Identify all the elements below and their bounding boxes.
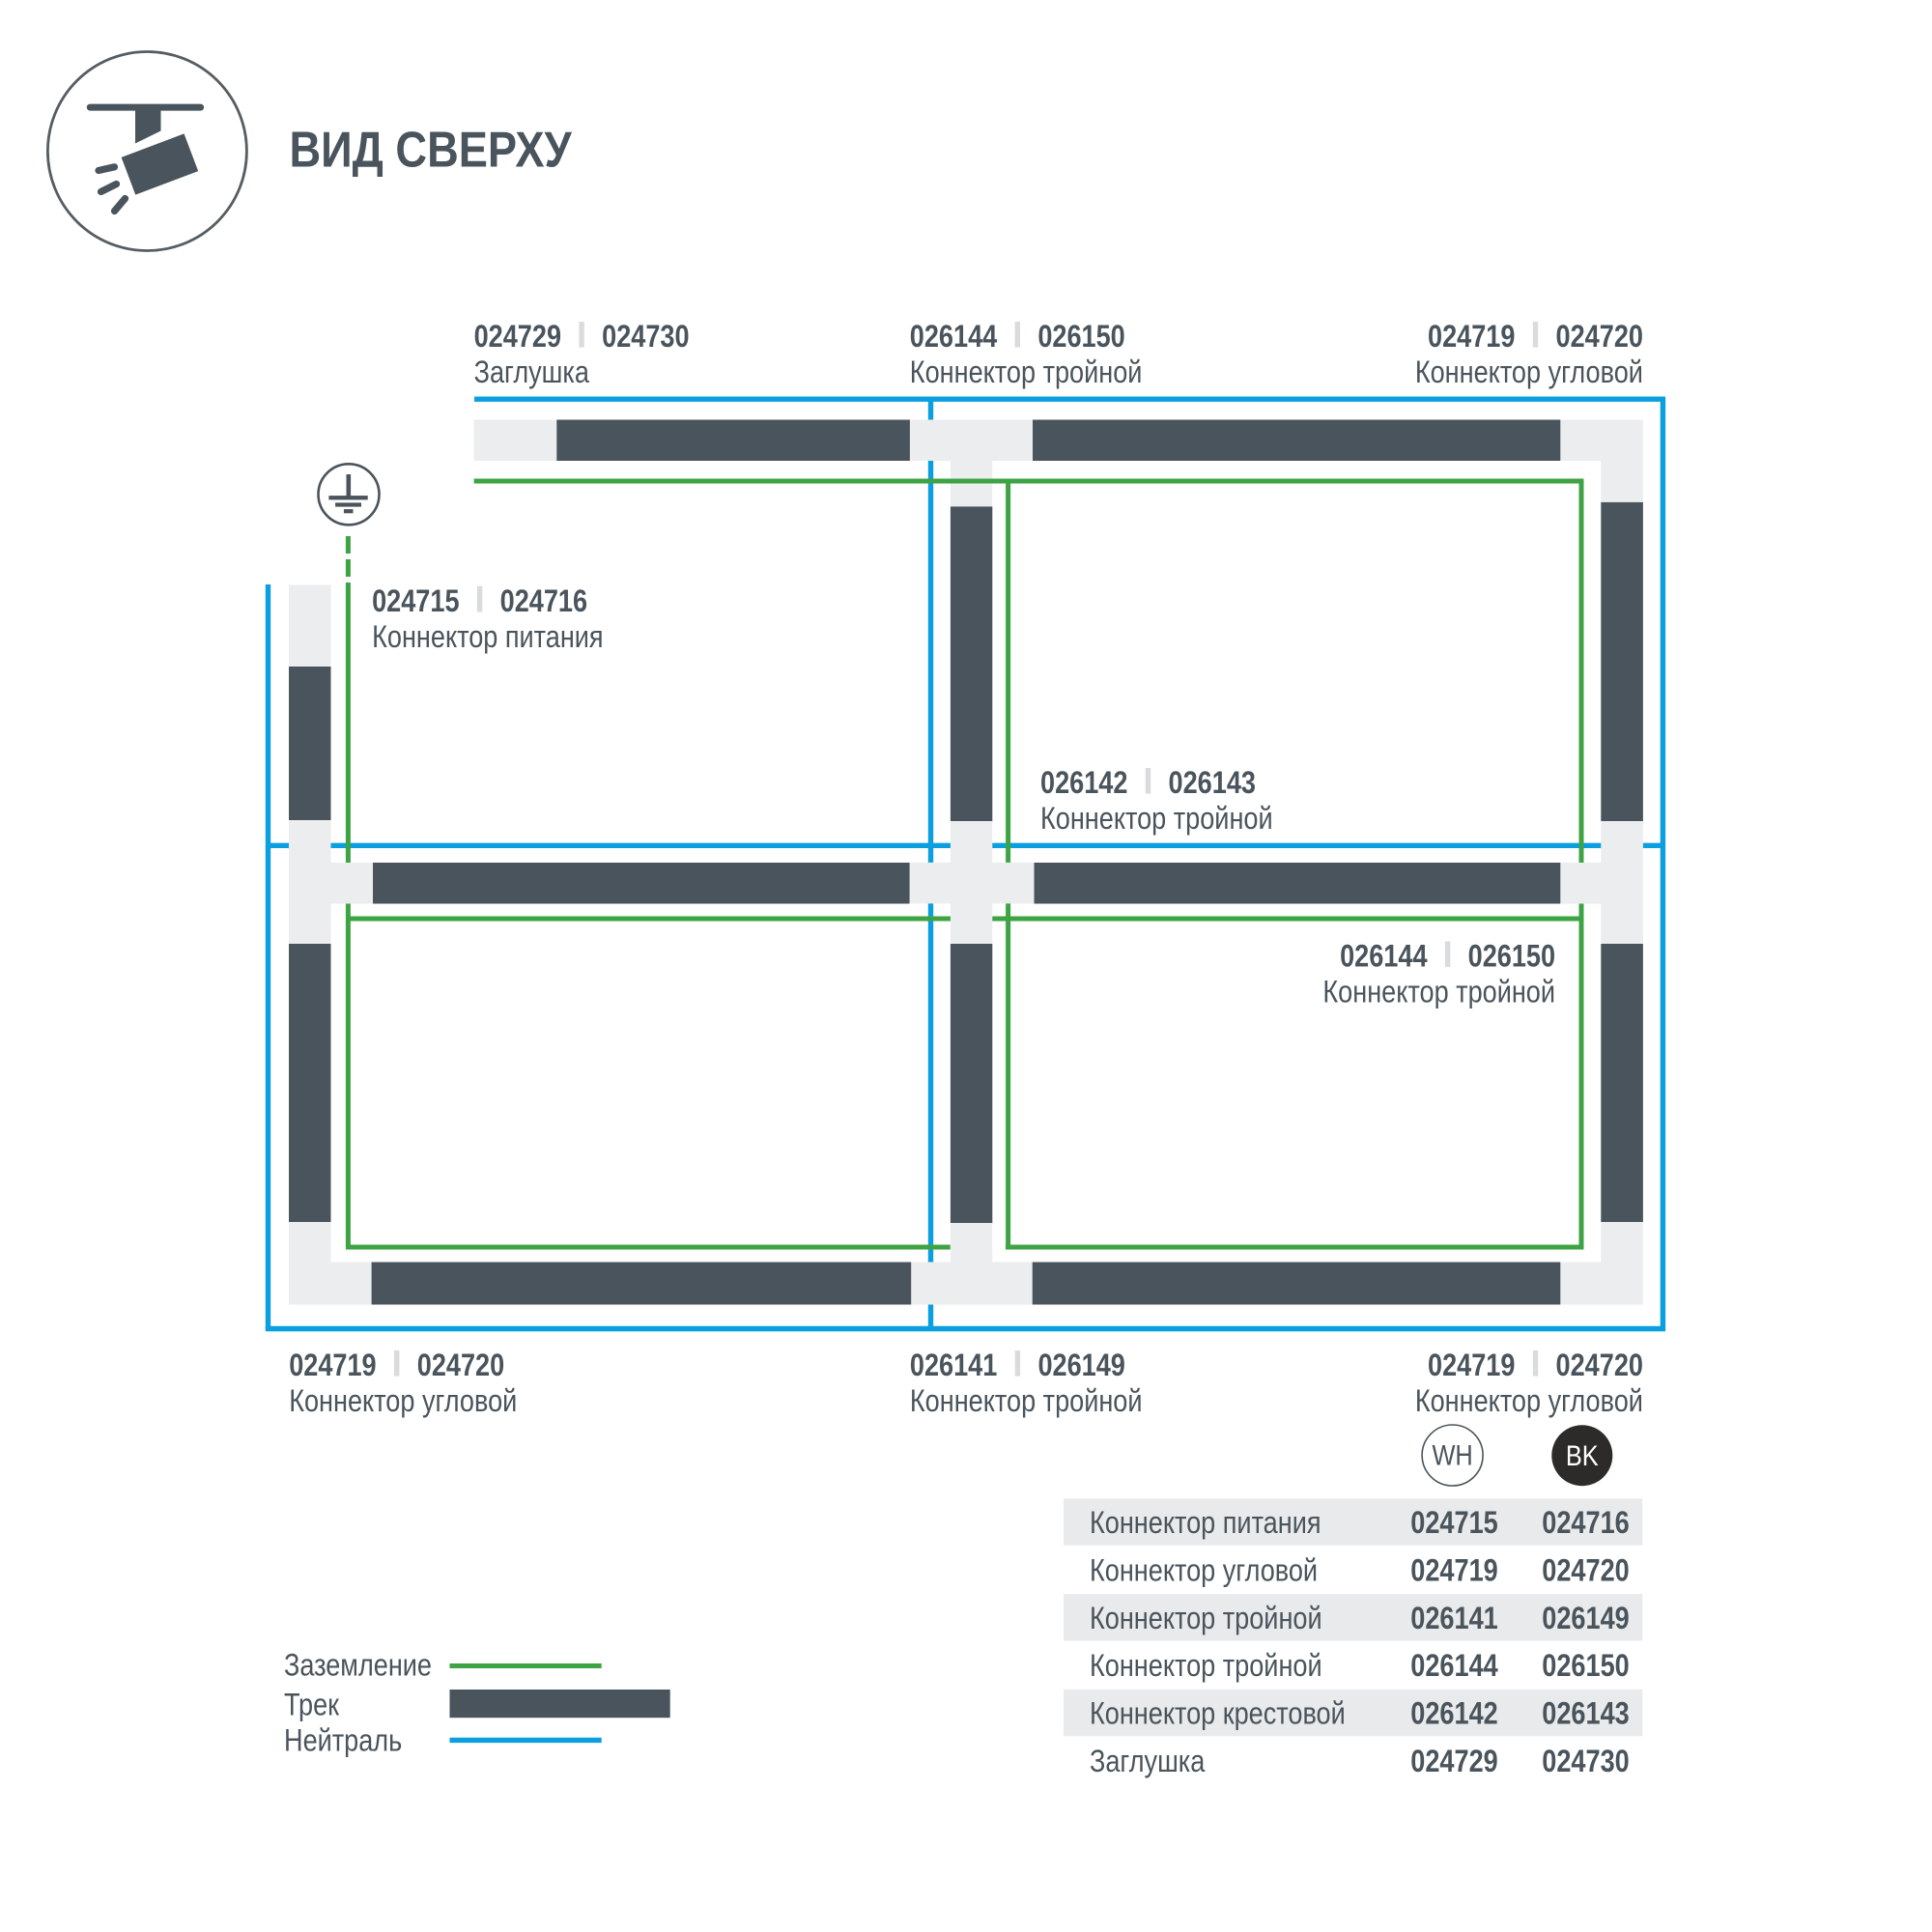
- svg-text:Коннектор тройной: Коннектор тройной: [1090, 1602, 1322, 1636]
- svg-text:Коннектор угловой: Коннектор угловой: [1415, 355, 1643, 390]
- svg-text:Коннектор питания: Коннектор питания: [1090, 1506, 1321, 1541]
- svg-text:024716: 024716: [500, 584, 587, 619]
- svg-text:024730: 024730: [602, 320, 689, 355]
- svg-text:Коннектор крестовой: Коннектор крестовой: [1090, 1697, 1346, 1732]
- svg-text:Коннектор тройной: Коннектор тройной: [1090, 1649, 1322, 1684]
- svg-text:024720: 024720: [1556, 320, 1643, 355]
- svg-text:024720: 024720: [1556, 1349, 1643, 1383]
- svg-text:Коннектор тройной: Коннектор тройной: [910, 355, 1143, 390]
- svg-text:026150: 026150: [1037, 320, 1124, 355]
- svg-text:Коннектор угловой: Коннектор угловой: [1090, 1553, 1318, 1588]
- svg-text:024720: 024720: [417, 1349, 504, 1383]
- svg-text:026141: 026141: [1410, 1602, 1497, 1636]
- svg-text:026143: 026143: [1542, 1697, 1629, 1732]
- svg-text:026144: 026144: [1340, 939, 1428, 974]
- svg-text:WH: WH: [1432, 1439, 1472, 1471]
- svg-text:Заглушка: Заглушка: [1090, 1745, 1206, 1779]
- svg-text:026150: 026150: [1468, 939, 1555, 974]
- svg-text:Коннектор угловой: Коннектор угловой: [1415, 1384, 1643, 1419]
- svg-text:024715: 024715: [1410, 1506, 1497, 1541]
- svg-text:Заземление: Заземление: [284, 1648, 432, 1683]
- svg-text:026142: 026142: [1410, 1697, 1497, 1732]
- svg-text:026150: 026150: [1542, 1649, 1629, 1684]
- svg-text:ВИД СВЕРХУ: ВИД СВЕРХУ: [290, 123, 573, 179]
- svg-text:024729: 024729: [1410, 1745, 1497, 1779]
- svg-text:024720: 024720: [1542, 1553, 1629, 1588]
- svg-text:024730: 024730: [1542, 1745, 1629, 1779]
- svg-text:024719: 024719: [1428, 320, 1515, 355]
- svg-text:Коннектор тройной: Коннектор тройной: [1040, 802, 1273, 837]
- svg-text:026143: 026143: [1169, 766, 1256, 801]
- svg-text:Коннектор тройной: Коннектор тройной: [1322, 975, 1555, 1009]
- svg-text:024729: 024729: [474, 320, 561, 355]
- svg-text:026144: 026144: [910, 320, 998, 355]
- svg-text:024719: 024719: [1410, 1553, 1497, 1588]
- svg-text:Коннектор питания: Коннектор питания: [372, 620, 604, 655]
- svg-text:026144: 026144: [1410, 1649, 1498, 1684]
- svg-text:Коннектор угловой: Коннектор угловой: [289, 1384, 517, 1419]
- svg-text:BK: BK: [1566, 1439, 1599, 1471]
- svg-text:024716: 024716: [1542, 1506, 1629, 1541]
- svg-text:026149: 026149: [1542, 1602, 1629, 1636]
- svg-text:026142: 026142: [1040, 766, 1127, 801]
- svg-text:Нейтраль: Нейтраль: [284, 1724, 402, 1759]
- svg-text:Трек: Трек: [284, 1688, 340, 1722]
- svg-text:024719: 024719: [289, 1349, 376, 1383]
- svg-text:Заглушка: Заглушка: [474, 355, 590, 390]
- svg-text:026141: 026141: [910, 1349, 997, 1383]
- svg-text:026149: 026149: [1037, 1349, 1124, 1383]
- svg-text:024715: 024715: [372, 584, 459, 619]
- svg-text:Коннектор тройной: Коннектор тройной: [910, 1384, 1143, 1419]
- svg-text:024719: 024719: [1428, 1349, 1515, 1383]
